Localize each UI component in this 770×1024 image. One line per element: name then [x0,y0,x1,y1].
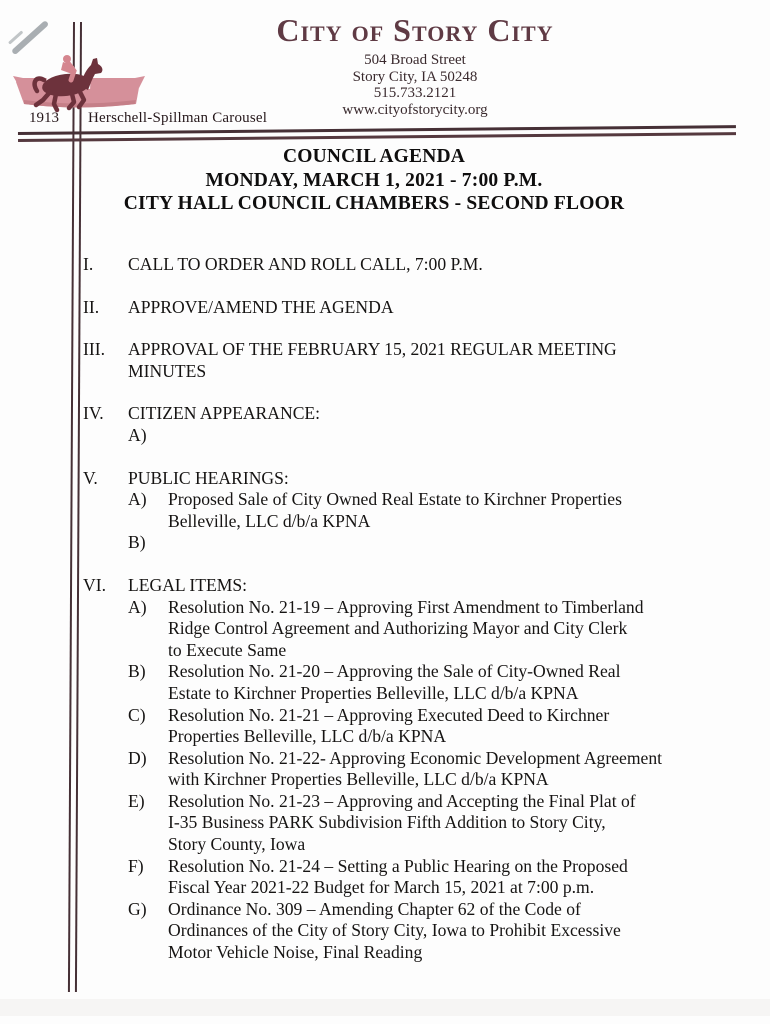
scan-edge-shadow [0,999,770,1016]
subitem-letter: A) [128,425,168,447]
agenda-subitem: A) [83,425,723,447]
agenda-subitem: D)Resolution No. 21-22- Approving Econom… [83,748,723,791]
scanned-agenda-page: 1913 Herschell-Spillman Carousel City of… [0,0,770,1024]
subitem-letter: A) [128,597,168,619]
agenda-section: IV.CITIZEN APPEARANCE:A) [83,403,723,446]
subitem-letter: B) [128,661,168,683]
section-title: CITIZEN APPEARANCE: [128,403,723,425]
subitem-letter: G) [128,899,168,921]
agenda-section: II.APPROVE/AMEND THE AGENDA [83,297,723,319]
agenda-subitem: A)Proposed Sale of City Owned Real Estat… [83,489,723,532]
subitem-letter: D) [128,748,168,770]
address-city: Story City, IA 50248 [200,69,630,86]
section-title: CALL TO ORDER AND ROLL CALL, 7:00 P.M. [128,254,723,276]
agenda-section: V.PUBLIC HEARINGS:A)Proposed Sale of Cit… [83,468,723,554]
section-numeral: VI. [83,575,128,597]
section-numeral: V. [83,468,128,490]
section-title: APPROVAL OF THE FEBRUARY 15, 2021 REGULA… [128,339,723,382]
subitem-letter: E) [128,791,168,813]
subitem-text: Resolution No. 21-23 – Approving and Acc… [168,791,723,856]
subitem-letter: F) [128,856,168,878]
subitem-letter: A) [128,489,168,511]
agenda-section: I.CALL TO ORDER AND ROLL CALL, 7:00 P.M. [83,254,723,276]
subitem-text: Resolution No. 21-19 – Approving First A… [168,597,723,662]
meeting-location: CITY HALL COUNCIL CHAMBERS - SECOND FLOO… [0,192,748,216]
agenda-subitem: C)Resolution No. 21-21 – Approving Execu… [83,705,723,748]
letterhead: City of Story City 504 Broad Street Stor… [200,12,630,118]
agenda-section-heading: IV.CITIZEN APPEARANCE: [83,403,723,425]
section-title: LEGAL ITEMS: [128,575,723,597]
section-numeral: II. [83,297,128,319]
agenda-section-heading: III.APPROVAL OF THE FEBRUARY 15, 2021 RE… [83,339,723,382]
agenda-subitem: F)Resolution No. 21-24 – Setting a Publi… [83,856,723,899]
meeting-title: COUNCIL AGENDA [0,145,748,169]
agenda-subitem: B) [83,532,723,554]
meeting-datetime: MONDAY, MARCH 1, 2021 - 7:00 P.M. [0,169,748,193]
subitem-letter: B) [128,532,168,554]
address-street: 504 Broad Street [200,52,630,69]
subitem-text: Proposed Sale of City Owned Real Estate … [168,489,723,532]
subitem-letter: C) [128,705,168,727]
section-title: PUBLIC HEARINGS: [128,468,723,490]
agenda-subitem: E)Resolution No. 21-23 – Approving and A… [83,791,723,856]
agenda-subitem: A)Resolution No. 21-19 – Approving First… [83,597,723,662]
phone-number: 515.733.2121 [200,85,630,102]
agenda-section-heading: II.APPROVE/AMEND THE AGENDA [83,297,723,319]
agenda-section-heading: VI.LEGAL ITEMS: [83,575,723,597]
website-url: www.cityofstorycity.org [200,102,630,119]
logo-year: 1913 [29,110,59,127]
agenda-list: I.CALL TO ORDER AND ROLL CALL, 7:00 P.M.… [83,254,723,985]
agenda-section: III.APPROVAL OF THE FEBRUARY 15, 2021 RE… [83,339,723,382]
section-numeral: III. [83,339,128,361]
section-title: APPROVE/AMEND THE AGENDA [128,297,723,319]
subitem-text: Resolution No. 21-24 – Setting a Public … [168,856,723,899]
subitem-text: Ordinance No. 309 – Amending Chapter 62 … [168,899,723,964]
carousel-horse-icon [8,14,148,124]
agenda-subitem: G)Ordinance No. 309 – Amending Chapter 6… [83,899,723,964]
agenda-section-heading: I.CALL TO ORDER AND ROLL CALL, 7:00 P.M. [83,254,723,276]
agenda-subitem: B)Resolution No. 21-20 – Approving the S… [83,661,723,704]
subitem-text: Resolution No. 21-20 – Approving the Sal… [168,661,723,704]
agenda-section-heading: V.PUBLIC HEARINGS: [83,468,723,490]
subitem-text: Resolution No. 21-21 – Approving Execute… [168,705,723,748]
org-name: City of Story City [200,12,630,48]
horizontal-double-rule [18,125,736,141]
agenda-section: VI.LEGAL ITEMS:A)Resolution No. 21-19 – … [83,575,723,964]
section-numeral: I. [83,254,128,276]
subitem-text: Resolution No. 21-22- Approving Economic… [168,748,723,791]
meeting-title-block: COUNCIL AGENDA MONDAY, MARCH 1, 2021 - 7… [0,145,748,216]
section-numeral: IV. [83,403,128,425]
